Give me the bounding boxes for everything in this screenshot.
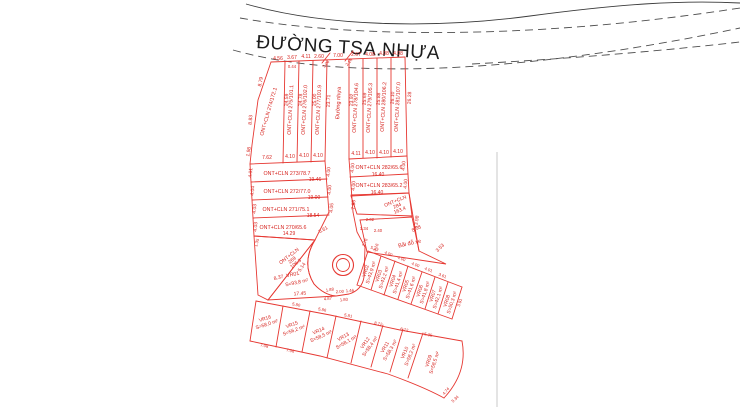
vr10-label: VR10S=58,2 m² bbox=[398, 341, 418, 367]
boundary-274-275 bbox=[283, 62, 285, 163]
plot-label-276: ONT+CLN 276/102.0 bbox=[301, 85, 310, 135]
plot-label-278: ONT+CLN 278/104.6 bbox=[352, 83, 361, 133]
dim: 2.40 bbox=[374, 228, 383, 233]
dim: 4.10 bbox=[299, 153, 309, 159]
dim: 3.53 bbox=[435, 243, 446, 254]
dim: 4.10 bbox=[313, 153, 323, 159]
plot-label-271: ONT+CLN 271/75.1 bbox=[263, 207, 310, 213]
dim: 26.28 bbox=[407, 91, 414, 104]
dim: 4.01 bbox=[248, 168, 255, 178]
culdesac-boundary bbox=[308, 212, 365, 296]
vr-lower-b1 bbox=[276, 306, 283, 347]
dim: 3.67 bbox=[287, 55, 297, 61]
main-road-label: Đường nhựa bbox=[335, 86, 343, 119]
vr01-area: S=93,8 m² bbox=[285, 278, 309, 289]
dim: 2.76 bbox=[361, 237, 369, 247]
culdesac-outer-circle bbox=[333, 255, 354, 276]
dim: 6.72 bbox=[400, 326, 410, 333]
dim: 7.08 bbox=[260, 342, 270, 349]
dim: 4.10 bbox=[285, 154, 295, 160]
dim: 4.10 bbox=[379, 150, 389, 156]
dim: 4.10 bbox=[365, 150, 375, 156]
dim: 4.04 bbox=[250, 186, 257, 196]
plot-label-277: ONT+CLN 277/101.9 bbox=[315, 85, 324, 135]
top-row-plot-labels: ONT+CLN 274/172.1 ONT+CLN 275/101.1 ONT+… bbox=[259, 82, 402, 137]
dim: 4.00 bbox=[350, 163, 357, 173]
dim: 4.03 bbox=[253, 222, 260, 232]
dim: 4.00 bbox=[403, 179, 410, 189]
boundary-275-276 bbox=[297, 61, 299, 162]
vr-lower-b3 bbox=[327, 316, 336, 358]
dim: 2.67 bbox=[351, 52, 361, 58]
dim: 16.40 bbox=[372, 172, 385, 178]
dim: 18.54 bbox=[307, 213, 320, 219]
vr09-label: VR09S=58,5 m² bbox=[423, 349, 442, 375]
vr-lower-row-boundaries bbox=[250, 301, 463, 398]
dim: 1.88 bbox=[325, 286, 334, 292]
dim: 4.00 bbox=[401, 161, 408, 171]
dim: 1.98 bbox=[245, 146, 253, 157]
top-row-bottom-left bbox=[250, 161, 325, 164]
dim: 4.00 bbox=[326, 167, 333, 177]
vr12-label: VR12S=58,4 m² bbox=[356, 332, 379, 358]
dim: 4.00 bbox=[351, 181, 358, 191]
dim: 5.34 bbox=[450, 394, 460, 404]
left-stack-labels: ONT+CLN 273/78.7 19.46 4.01 4.00 ONT+CLN… bbox=[248, 167, 336, 248]
dim: 1.80 bbox=[340, 297, 349, 303]
road-boundary-curves bbox=[233, 2, 740, 407]
boundary-276-277 bbox=[311, 61, 313, 162]
plot-label-272: ONT+CLN 272/77.0 bbox=[264, 189, 311, 195]
vr-lower-b0 bbox=[250, 301, 256, 341]
plot-label-281: ONT+CLN 281/107.0 bbox=[394, 82, 403, 132]
dim: 8.79 bbox=[257, 76, 265, 87]
dim: 19.00 bbox=[308, 195, 321, 201]
plot-label-283: ONT+CLN 283/65.2 bbox=[356, 183, 403, 189]
dim: 5.86 bbox=[318, 306, 328, 313]
culdesac: 1.88 2.00 1.46 bbox=[308, 212, 365, 296]
dim: 5.35 bbox=[424, 331, 434, 338]
dim: 2.00 bbox=[336, 289, 345, 295]
dim: 5.80 bbox=[292, 301, 302, 308]
dim: 19.46 bbox=[309, 177, 322, 183]
plot-label-282: ONT+CLN 282/65.6 bbox=[356, 165, 403, 171]
vr15-label: VR15S=56,2 m² bbox=[280, 318, 306, 337]
dim: 4.87 bbox=[324, 296, 333, 302]
plot-label-273: ONT+CLN 273/78.7 bbox=[264, 171, 311, 177]
dim: 4.03 bbox=[252, 204, 259, 214]
dim: 4.00 bbox=[397, 255, 407, 263]
boundary-solid-curve bbox=[246, 2, 740, 24]
dim: 1.46 bbox=[346, 288, 355, 294]
dim: 4.08 bbox=[379, 51, 389, 57]
plot-label-284: ONT+CLN 284 163.4 bbox=[383, 194, 412, 218]
dim: 8.83 bbox=[248, 115, 255, 125]
vr16-label: VR16S=58,0 m² bbox=[253, 313, 279, 332]
vr14-label: VR14S=58,5 m² bbox=[307, 324, 333, 345]
dim: 4.00 bbox=[327, 185, 334, 195]
dim: 4.01 bbox=[424, 266, 434, 274]
road-left-edge bbox=[325, 60, 327, 161]
dim: 0.44 bbox=[288, 64, 297, 69]
dim: 4.10 bbox=[393, 149, 403, 155]
boundary-dashed-curve-3 bbox=[472, 42, 740, 64]
dim: 4.05 bbox=[329, 203, 336, 213]
cadastral-map-photo: ĐƯỜNG TSA.NHỰA 4.56 3.67 4.11 2.60 7.00 … bbox=[0, 0, 740, 420]
plot-label-279: ONT+CLN 279/105.3 bbox=[366, 83, 375, 133]
culdesac-inner-circle bbox=[337, 259, 350, 272]
plot-label-280: ONT+CLN 280/106.2 bbox=[380, 82, 389, 132]
dim: 4.56 bbox=[273, 56, 283, 62]
vr01-name: VR01 bbox=[286, 271, 300, 280]
dim: 4.00 bbox=[411, 261, 421, 269]
dim: 2.60 bbox=[314, 54, 324, 60]
plot-label-275: ONT+CLN 275/101.1 bbox=[287, 85, 296, 135]
top-row-right-edge bbox=[405, 57, 407, 156]
dim: 4.11 bbox=[301, 54, 311, 60]
vr-lower-row-labels: VR16S=58,0 m² VR15S=56,2 m² VR14S=58,5 m… bbox=[253, 301, 460, 403]
dim: 4.00 bbox=[384, 250, 394, 258]
dim: 23.71 bbox=[326, 94, 333, 107]
dim: 7.00 bbox=[333, 53, 343, 59]
dim: 7.83 bbox=[351, 200, 358, 210]
vr11-label: VR11S=58,3 m² bbox=[377, 336, 399, 362]
cadastral-map: ĐƯỜNG TSA.NHỰA 4.56 3.67 4.11 2.60 7.00 … bbox=[0, 0, 740, 420]
dim: 4.11 bbox=[351, 151, 361, 157]
dim: 7.06 bbox=[286, 347, 296, 354]
dim: 7.62 bbox=[262, 155, 272, 161]
dim: 4.08 bbox=[365, 52, 375, 58]
dim: 3.91 bbox=[456, 297, 463, 307]
dim: 14.29 bbox=[283, 231, 296, 237]
dim: 17.45 bbox=[293, 291, 306, 298]
vr-lower-b2 bbox=[302, 311, 310, 352]
dim: 4.74 bbox=[441, 386, 451, 396]
dim: 4.08 bbox=[393, 51, 403, 57]
plot-label-274: ONT+CLN 274/172.1 bbox=[259, 87, 279, 137]
